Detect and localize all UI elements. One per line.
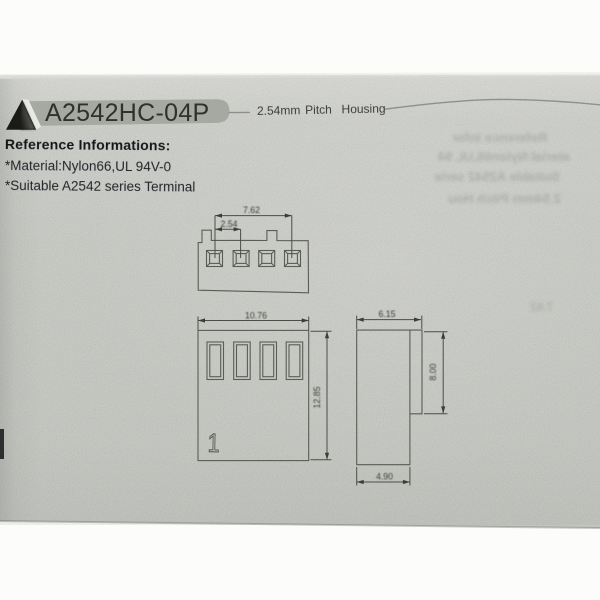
svg-text:2.54: 2.54: [220, 219, 237, 229]
svg-text:7.62: 7.62: [243, 205, 260, 215]
svg-text:12.85: 12.85: [312, 386, 322, 408]
svg-text:4.90: 4.90: [376, 472, 393, 482]
svg-text:8.00: 8.00: [428, 363, 438, 380]
svg-text:6.15: 6.15: [378, 309, 395, 319]
svg-text:1: 1: [207, 429, 219, 459]
svg-text:10.76: 10.76: [245, 311, 267, 321]
